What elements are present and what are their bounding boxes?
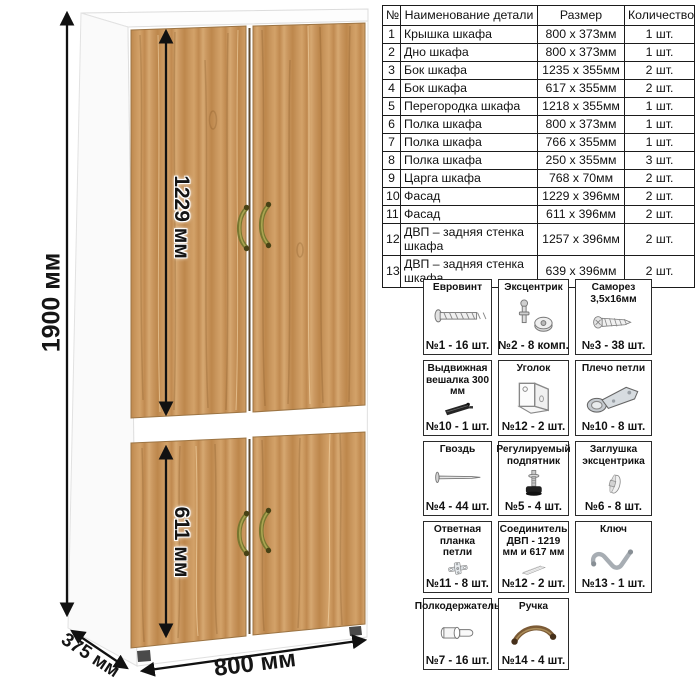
- part-num: 7: [383, 134, 401, 152]
- part-size: 800 x 373мм: [538, 44, 625, 62]
- hardware-item-adjustable-foot: Регулируемый подпятник №5 - 4 шт.: [498, 441, 569, 516]
- hex-key-icon: [577, 536, 650, 577]
- col-header-name: Наименование детали: [401, 6, 538, 26]
- table-row: 10Фасад1229 x 396мм2 шт.: [383, 188, 695, 206]
- part-size: 611 x 396мм: [538, 206, 625, 224]
- part-name: Дно шкафа: [401, 44, 538, 62]
- hardware-title: Соединитель ДВП - 1219 мм и 617 мм: [500, 524, 568, 559]
- hardware-count: №1 - 16 шт.: [426, 339, 489, 352]
- hardware-item-cam-cover: Заглушка эксцентрика №6 - 8 шт.: [575, 441, 652, 516]
- part-num: 1: [383, 26, 401, 44]
- height-dimension-label: 1900 мм: [38, 248, 67, 358]
- hardware-count: №14 - 4 шт.: [502, 654, 565, 667]
- corner-bracket-icon: [500, 375, 567, 420]
- part-size: 768 x 70мм: [538, 170, 625, 188]
- part-size: 617 x 355мм: [538, 80, 625, 98]
- hardware-title: Ключ: [600, 524, 627, 536]
- table-row: 2Дно шкафа800 x 373мм1 шт.: [383, 44, 695, 62]
- part-name: Царга шкафа: [401, 170, 538, 188]
- part-size: 766 x 355мм: [538, 134, 625, 152]
- door-lower-right: [253, 432, 365, 635]
- part-name: Бок шкафа: [401, 62, 538, 80]
- part-num: 11: [383, 206, 401, 224]
- part-num: 6: [383, 116, 401, 134]
- euroscrew-icon: [425, 294, 490, 339]
- shelf-pin-icon: [425, 613, 490, 654]
- hardware-title: Уголок: [517, 363, 551, 375]
- hardware-title: Ручка: [519, 601, 548, 613]
- part-qty: 2 шт.: [625, 188, 695, 206]
- hardware-count: №6 - 8 шт.: [585, 500, 642, 513]
- hdf-connector-icon: [500, 559, 567, 577]
- hardware-title: Саморез 3,5х16мм: [577, 282, 650, 305]
- hardware-count: №10 - 1 шт.: [426, 420, 489, 433]
- hardware-count: №13 - 1 шт.: [582, 577, 645, 590]
- part-name: Полка шкафа: [401, 152, 538, 170]
- part-qty: 2 шт.: [625, 206, 695, 224]
- hardware-count: №2 - 8 комп.: [498, 339, 569, 352]
- table-row: 5Перегородка шкафа1218 x 355мм1 шт.: [383, 98, 695, 116]
- hardware-item-shelf-pin: Полкодержатель №7 - 16 шт.: [423, 598, 492, 670]
- part-qty: 3 шт.: [625, 152, 695, 170]
- part-size: 800 x 373мм: [538, 26, 625, 44]
- hardware-title: Евровинт: [433, 282, 482, 294]
- hardware-count: №10 - 8 шт.: [582, 420, 645, 433]
- hardware-item-hanger: Выдвижная вешалка 300 мм №10 - 1 шт.: [423, 360, 492, 436]
- table-row: 8Полка шкафа250 x 355мм3 шт.: [383, 152, 695, 170]
- hardware-grid: Евровинт №1 - 16 шт. Эксцентрик №2 - 8 к…: [423, 279, 652, 670]
- part-num: 13: [383, 256, 401, 288]
- part-name: Крышка шкафа: [401, 26, 538, 44]
- part-name: Фасад: [401, 206, 538, 224]
- wardrobe-foot-right: [349, 626, 362, 636]
- upper-door-dimension-label: 1229 мм: [169, 172, 193, 262]
- part-name: Фасад: [401, 188, 538, 206]
- hardware-item-hinge-plate: Ответная планка петли №11 - 8 шт.: [423, 521, 492, 593]
- part-size: 1218 x 355мм: [538, 98, 625, 116]
- hardware-item-screw: Саморез 3,5х16мм №3 - 38 шт.: [575, 279, 652, 355]
- table-row: 11Фасад611 x 396мм2 шт.: [383, 206, 695, 224]
- col-header-num: №: [383, 6, 401, 26]
- part-size: 800 x 373мм: [538, 116, 625, 134]
- table-row: 12ДВП – задняя стенка шкафа1257 x 396мм2…: [383, 224, 695, 256]
- part-num: 5: [383, 98, 401, 116]
- pullout-hanger-icon: [425, 398, 490, 420]
- part-qty: 1 шт.: [625, 134, 695, 152]
- part-num: 9: [383, 170, 401, 188]
- parts-table: № Наименование детали Размер Количество …: [382, 5, 695, 288]
- part-name: Полка шкафа: [401, 116, 538, 134]
- part-qty: 2 шт.: [625, 62, 695, 80]
- wardrobe-foot-left: [137, 650, 151, 662]
- hardware-item-euroscrew: Евровинт №1 - 16 шт.: [423, 279, 492, 355]
- hardware-item-key: Ключ №13 - 1 шт.: [575, 521, 652, 593]
- hardware-count: №4 - 44 шт.: [426, 500, 489, 513]
- assembly-sheet: 1900 мм 1229 мм 611 мм 800 мм 375 мм № Н…: [0, 0, 700, 700]
- nail-icon: [425, 456, 490, 500]
- furniture-handle-icon: [500, 613, 567, 654]
- part-num: 12: [383, 224, 401, 256]
- hardware-title: Выдвижная вешалка 300 мм: [425, 363, 490, 398]
- hardware-item-corner-bracket: Уголок №12 - 2 шт.: [498, 360, 569, 436]
- part-qty: 1 шт.: [625, 44, 695, 62]
- table-row: 1Крышка шкафа800 x 373мм1 шт.: [383, 26, 695, 44]
- part-qty: 2 шт.: [625, 224, 695, 256]
- hardware-title: Плечо петли: [582, 363, 645, 375]
- lower-door-dimension-label: 611 мм: [169, 500, 193, 584]
- hardware-count: №5 - 4 шт.: [505, 500, 562, 513]
- col-header-size: Размер: [538, 6, 625, 26]
- hardware-count: №11 - 8 шт.: [426, 577, 489, 590]
- hardware-title: Ответная планка петли: [425, 524, 490, 559]
- part-num: 3: [383, 62, 401, 80]
- parts-table-header-row: № Наименование детали Размер Количество: [383, 6, 695, 26]
- part-qty: 1 шт.: [625, 98, 695, 116]
- hardware-item-eccentric: Эксцентрик №2 - 8 комп.: [498, 279, 569, 355]
- table-row: 4Бок шкафа617 x 355мм2 шт.: [383, 80, 695, 98]
- part-size: 250 x 355мм: [538, 152, 625, 170]
- hardware-item-nail: Гвоздь №4 - 44 шт.: [423, 441, 492, 516]
- hardware-count: №12 - 2 шт.: [502, 577, 565, 590]
- hardware-item-hinge-arm: Плечо петли №10 - 8 шт.: [575, 360, 652, 436]
- hardware-title: Эксцентрик: [504, 282, 563, 294]
- hardware-count: №7 - 16 шт.: [426, 654, 489, 667]
- hardware-title: Полкодержатель: [415, 601, 500, 613]
- hardware-item-hdf-connector: Соединитель ДВП - 1219 мм и 617 мм №12 -…: [498, 521, 569, 593]
- part-qty: 2 шт.: [625, 170, 695, 188]
- self-tapping-screw-icon: [577, 305, 650, 339]
- adjustable-foot-icon: [500, 467, 567, 500]
- hardware-count: №3 - 38 шт.: [582, 339, 645, 352]
- part-name: Бок шкафа: [401, 80, 538, 98]
- table-row: 3Бок шкафа1235 x 355мм2 шт.: [383, 62, 695, 80]
- hinge-arm-icon: [577, 375, 650, 420]
- part-size: 1235 x 355мм: [538, 62, 625, 80]
- part-size: 1257 x 396мм: [538, 224, 625, 256]
- part-qty: 2 шт.: [625, 80, 695, 98]
- part-size: 1229 x 396мм: [538, 188, 625, 206]
- table-row: 9Царга шкафа768 x 70мм2 шт.: [383, 170, 695, 188]
- col-header-qty: Количество: [625, 6, 695, 26]
- hardware-item-handle: Ручка №14 - 4 шт.: [498, 598, 569, 670]
- part-qty: 1 шт.: [625, 26, 695, 44]
- part-name: ДВП – задняя стенка шкафа: [401, 224, 538, 256]
- table-row: 7Полка шкафа766 x 355мм1 шт.: [383, 134, 695, 152]
- part-num: 8: [383, 152, 401, 170]
- part-name: Перегородка шкафа: [401, 98, 538, 116]
- part-num: 2: [383, 44, 401, 62]
- hardware-title: Заглушка эксцентрика: [577, 444, 650, 467]
- part-name: Полка шкафа: [401, 134, 538, 152]
- table-row: 6Полка шкафа800 x 373мм1 шт.: [383, 116, 695, 134]
- hinge-plate-icon: [425, 559, 490, 577]
- eccentric-cam-icon: [500, 294, 567, 339]
- part-num: 4: [383, 80, 401, 98]
- hardware-count: №12 - 2 шт.: [502, 420, 565, 433]
- cam-cover-icon: [577, 467, 650, 500]
- part-num: 10: [383, 188, 401, 206]
- part-qty: 1 шт.: [625, 116, 695, 134]
- hardware-title: Гвоздь: [440, 444, 476, 456]
- hardware-title: Регулируемый подпятник: [496, 444, 570, 467]
